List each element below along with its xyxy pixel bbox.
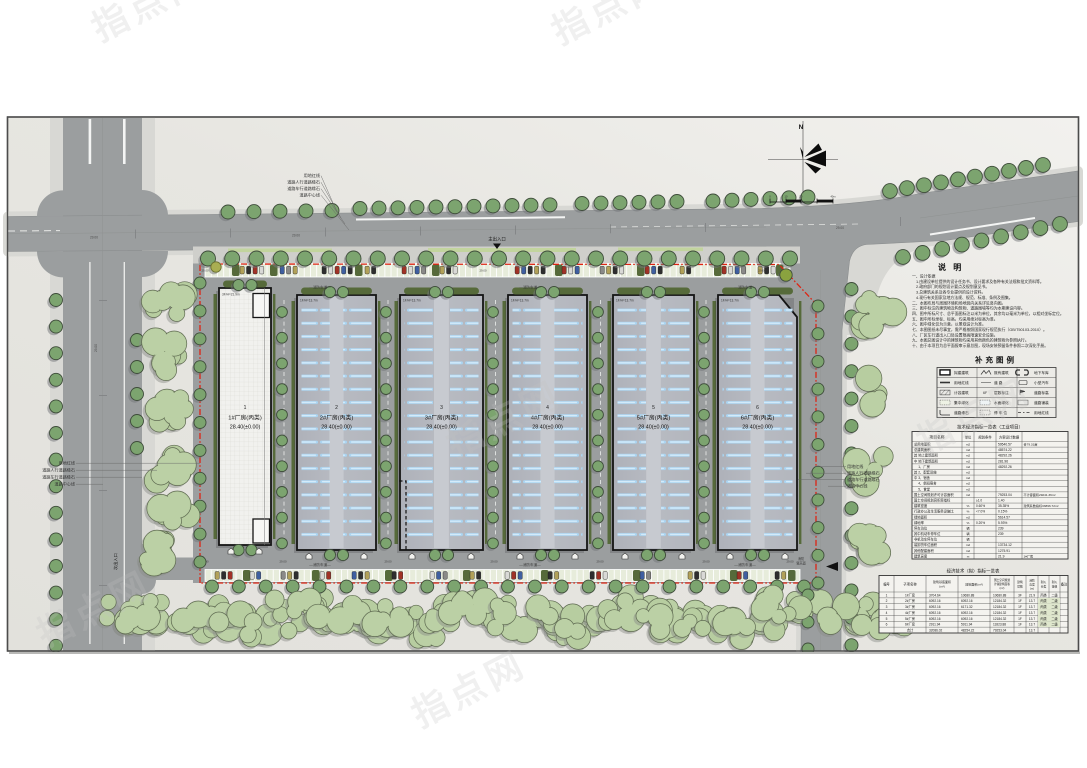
svg-text:中 3、宿舍: 中 3、宿舍	[914, 475, 931, 480]
svg-text:1F: 1F	[1018, 599, 1022, 603]
svg-text:29.00: 29.00	[202, 269, 209, 273]
svg-text:既有建筑: 既有建筑	[994, 370, 1009, 375]
svg-text:国土空间规划许可计容面积: 国土空间规划许可计容面积	[914, 492, 954, 497]
svg-text:48254.22: 48254.22	[961, 628, 975, 632]
svg-text:绿地面积: 绿地面积	[914, 514, 928, 519]
svg-text:不计容面积29241.36m²: 不计容面积29241.36m²	[1024, 492, 1056, 497]
svg-text:1: 1	[244, 405, 247, 411]
svg-text:七、本图图纸未尽事宜，需严格按照国家现行规范执行（GB/T5: 七、本图图纸未尽事宜，需严格按照国家现行规范执行（GB/T50103-2010）…	[912, 327, 1047, 332]
svg-text:(m²): (m²)	[1000, 586, 1005, 590]
svg-text:说 明: 说 明	[938, 262, 964, 272]
svg-text:次出入口: 次出入口	[112, 553, 119, 570]
svg-text:10680.88: 10680.88	[993, 593, 1007, 597]
svg-text:丙类: 丙类	[1040, 598, 1047, 603]
svg-text:12184.32: 12184.32	[993, 599, 1007, 603]
svg-text:6#厂房(丙类): 6#厂房(丙类)	[741, 414, 775, 422]
svg-text:6092.16: 6092.16	[961, 611, 973, 615]
svg-text:29.00: 29.00	[280, 560, 287, 564]
svg-text:非机动车停车位: 非机动车停车位	[914, 537, 938, 542]
svg-text:29.00: 29.00	[480, 269, 487, 273]
svg-text:建筑系数指标33896.72m²: 建筑系数指标33896.72m²	[1024, 503, 1059, 508]
svg-text:4: 4	[886, 611, 888, 615]
svg-text:21.9: 21.9	[998, 554, 1005, 558]
svg-text:3.总建筑关系及各专业提供的设计资料。: 3.总建筑关系及各专业提供的设计资料。	[916, 290, 985, 295]
svg-text:6092.16: 6092.16	[929, 605, 941, 609]
svg-text:N: N	[799, 124, 804, 131]
svg-text:道路车行道路缘石: 道路车行道路缘石	[847, 476, 880, 482]
svg-text:合79.31亩: 合79.31亩	[1024, 442, 1038, 447]
svg-text:三、图中标注的建筑物及构筑物、道路围墙等均为本期建设内容。: 三、图中标注的建筑物及构筑物、道路围墙等均为本期建设内容。	[912, 306, 1025, 311]
svg-text:拟建建筑: 拟建建筑	[954, 370, 969, 375]
svg-text:1.40: 1.40	[998, 498, 1005, 502]
svg-text:1#厂房: 1#厂房	[905, 592, 915, 597]
svg-text:八、厂区车行道出入口处设置限高限速安全设施。: 八、厂区车行道出入口处设置限高限速安全设施。	[912, 332, 998, 337]
svg-text:28.40(±0.00): 28.40(±0.00)	[532, 425, 563, 431]
svg-text:十、由于本项目为总平面报审示意总图，现场安装预留条件参照二次: 十、由于本项目为总平面报审示意总图，现场安装预留条件参照二次深化手册。	[912, 343, 1048, 348]
svg-text:六、图中绿化仅为示意，以景观设计为准。: 六、图中绿化仅为示意，以景观设计为准。	[912, 322, 986, 327]
svg-text:48292.26: 48292.26	[998, 465, 1012, 469]
svg-text:子项名称: 子项名称	[903, 582, 917, 587]
svg-text:耐火: 耐火	[1041, 580, 1047, 584]
svg-text:丙类: 丙类	[1040, 622, 1047, 627]
svg-text:13.7: 13.7	[1029, 611, 1035, 615]
svg-text:—消防车道—: —消防车道—	[734, 562, 756, 567]
svg-text:1: 1	[886, 593, 888, 597]
svg-text:239: 239	[998, 526, 1004, 530]
svg-text:丙类: 丙类	[1040, 610, 1047, 615]
svg-text:九、本图总图设计中的建筑物均采用其他颜色的建筑物为参照执行。: 九、本图总图设计中的建筑物均采用其他颜色的建筑物为参照执行。	[912, 338, 1029, 343]
svg-text:12184.32: 12184.32	[993, 617, 1007, 621]
svg-text:道路车行道路缘石: 道路车行道路缘石	[287, 185, 320, 191]
svg-text:32086.02: 32086.02	[929, 628, 943, 632]
svg-text:登高面: 登高面	[796, 561, 806, 566]
svg-text:2#厂房: 2#厂房	[905, 598, 915, 603]
svg-text:二级: 二级	[1051, 598, 1058, 603]
svg-text:—消防车道—: —消防车道—	[734, 285, 756, 290]
svg-text:m2: m2	[966, 476, 971, 480]
svg-text:5: 5	[652, 405, 655, 411]
svg-text:21.9: 21.9	[1029, 593, 1035, 597]
svg-text:3704.64: 3704.64	[929, 593, 941, 597]
svg-text:—消防车道—: —消防车道—	[309, 285, 331, 290]
svg-text:13.7: 13.7	[1029, 605, 1035, 609]
svg-text:二级: 二级	[1051, 610, 1058, 615]
svg-text:0.20%: 0.20%	[976, 521, 985, 525]
svg-text:国土空间规划: 国土空间规划	[994, 578, 1010, 582]
svg-text:地下车库: 地下车库	[1034, 370, 1049, 375]
svg-text:计容建筑: 计容建筑	[954, 390, 969, 395]
svg-text:m2: m2	[966, 543, 971, 547]
svg-text:1#厂房(丙类): 1#厂房(丙类)	[228, 414, 262, 422]
svg-text:3F: 3F	[1018, 593, 1022, 597]
svg-text:1F/H=13.7m: 1F/H=13.7m	[300, 299, 318, 303]
svg-text:1F: 1F	[1018, 623, 1022, 627]
svg-text:48292.26: 48292.26	[998, 454, 1012, 458]
svg-text:48574.22: 48574.22	[998, 448, 1012, 452]
svg-text:1F/H=13.7m: 1F/H=13.7m	[721, 299, 739, 303]
svg-text:13.7: 13.7	[1029, 599, 1035, 603]
svg-text:停车泊位: 停车泊位	[914, 525, 928, 530]
svg-text:28.40(±0.00): 28.40(±0.00)	[230, 425, 261, 431]
svg-text:补充图例: 补充图例	[974, 355, 1017, 365]
svg-text:3: 3	[440, 405, 443, 411]
svg-text:四、图中所标尺寸、总平面图标注以米为单位，其余均以毫米为单位: 四、图中所标尺寸、总平面图标注以米为单位，其余均以毫米为单位，以相对坐标定位。	[912, 311, 1064, 316]
svg-text:2: 2	[886, 599, 888, 603]
svg-text:m2: m2	[966, 487, 971, 491]
svg-text:丙类: 丙类	[1040, 616, 1047, 621]
svg-text:(m²): (m²)	[939, 585, 945, 589]
svg-text:13.7: 13.7	[1029, 617, 1035, 621]
svg-text:12184.32: 12184.32	[993, 611, 1007, 615]
svg-text:5911.94: 5911.94	[961, 623, 973, 627]
svg-text:3#厂房(丙类): 3#厂房(丙类)	[425, 414, 459, 422]
svg-text:1#厂房: 1#厂房	[1024, 553, 1034, 558]
svg-text:5.93%: 5.93%	[998, 521, 1007, 525]
svg-text:6092.16: 6092.16	[929, 599, 941, 603]
svg-text:29.00: 29.00	[385, 560, 392, 564]
svg-text:丙类: 丙类	[1040, 592, 1047, 597]
svg-text:11823.88: 11823.88	[993, 623, 1006, 627]
svg-text:等级: 等级	[1052, 585, 1058, 589]
svg-text:6092.16: 6092.16	[961, 599, 973, 603]
svg-text:用地红线: 用地红线	[59, 460, 75, 466]
svg-text:0.15%: 0.15%	[998, 510, 1007, 514]
svg-text:二级: 二级	[1051, 592, 1058, 597]
svg-text:1275.91: 1275.91	[998, 549, 1010, 553]
svg-text:道路中心线: 道路中心线	[55, 481, 75, 487]
svg-text:29.00: 29.00	[597, 560, 604, 564]
svg-text:其他配建面积: 其他配建面积	[914, 548, 934, 553]
svg-text:m2: m2	[966, 465, 971, 469]
svg-text:二级: 二级	[1051, 604, 1058, 609]
svg-text:239: 239	[998, 532, 1004, 536]
svg-text:%: %	[967, 504, 970, 508]
svg-text:道路中心线: 道路中心线	[300, 192, 320, 198]
svg-text:13.7: 13.7	[1029, 623, 1035, 627]
svg-text:—消防车道—: —消防车道—	[519, 562, 541, 567]
svg-text:29.00: 29.00	[292, 234, 300, 238]
svg-text:五、图中所标坐标、标高，均采用绝对标高为准。: 五、图中所标坐标、标高，均采用绝对标高为准。	[912, 316, 998, 321]
svg-text:0.60%: 0.60%	[976, 504, 985, 508]
svg-text:辆: 辆	[966, 531, 969, 536]
svg-text:用地红线: 用地红线	[954, 380, 969, 385]
svg-text:5、食堂: 5、食堂	[914, 486, 931, 491]
svg-text:2.政府部门的规划设计要点及规划意见书。: 2.政府部门的规划设计要点及规划意见书。	[916, 284, 989, 289]
svg-text:经济技术（拟）指标一览表: 经济技术（拟）指标一览表	[947, 568, 1000, 575]
svg-text:29.00: 29.00	[759, 269, 766, 273]
svg-text:28.40(±0.00): 28.40(±0.00)	[742, 425, 773, 431]
svg-text:6092.16: 6092.16	[961, 617, 973, 621]
svg-text:79253.04: 79253.04	[993, 628, 1007, 632]
svg-text:1F/H=13.7m: 1F/H=13.7m	[616, 299, 634, 303]
svg-text:计容建筑面积: 计容建筑面积	[994, 582, 1010, 586]
svg-text:29.00: 29.00	[491, 560, 498, 564]
svg-text:编号: 编号	[883, 582, 889, 587]
svg-text:二、本图布局与周围环境和场地竖向关系详见竖向图。: 二、本图布局与周围环境和场地竖向关系详见竖向图。	[912, 300, 1005, 305]
svg-text:40m: 40m	[830, 195, 835, 199]
svg-text:分类: 分类	[1041, 585, 1047, 589]
svg-text:13734.12: 13734.12	[998, 543, 1012, 547]
svg-text:—消防车道—: —消防车道—	[309, 562, 331, 567]
svg-text:1、厂房: 1、厂房	[914, 464, 931, 469]
svg-text:一、设计依据: 一、设计依据	[912, 274, 935, 279]
svg-text:辆: 辆	[966, 525, 969, 530]
svg-text:1F/H=13.7m: 1F/H=13.7m	[403, 299, 421, 303]
svg-text:m2: m2	[966, 482, 971, 486]
svg-text:<7.0%: <7.0%	[976, 510, 985, 514]
svg-text:79253.04: 79253.04	[998, 493, 1012, 497]
svg-text:29.00: 29.00	[703, 560, 710, 564]
svg-text:3#厂房: 3#厂房	[905, 604, 915, 609]
svg-text:建筑面积(m²): 建筑面积(m²)	[965, 582, 983, 587]
svg-text:m2: m2	[966, 549, 971, 553]
svg-text:28.40(±0.00): 28.40(±0.00)	[638, 425, 669, 431]
svg-text:道路人行道路缘石: 道路人行道路缘石	[287, 179, 320, 185]
svg-text:m2: m2	[966, 443, 971, 447]
svg-text:13.7: 13.7	[1029, 628, 1035, 632]
svg-text:5#厂房: 5#厂房	[905, 616, 915, 621]
svg-text:m2: m2	[966, 448, 971, 452]
svg-text:m2: m2	[966, 515, 971, 519]
svg-text:4.现行有关国家及地方法规、规范、标准、条例及图集。: 4.现行有关国家及地方法规、规范、标准、条例及图集。	[916, 295, 1013, 300]
svg-text:6092.16: 6092.16	[929, 617, 941, 621]
svg-text:6: 6	[756, 405, 759, 411]
svg-text:二级: 二级	[1051, 622, 1058, 627]
svg-text:建筑高度: 建筑高度	[914, 553, 928, 558]
svg-text:29.00: 29.00	[90, 236, 98, 240]
svg-text:281.96: 281.96	[998, 459, 1008, 463]
svg-text:消防: 消防	[798, 556, 805, 561]
svg-text:2#厂房(丙类): 2#厂房(丙类)	[320, 414, 354, 422]
svg-text:28.40(±0.00): 28.40(±0.00)	[321, 425, 352, 431]
svg-text:29.00: 29.00	[94, 344, 98, 352]
svg-text:3: 3	[886, 605, 888, 609]
svg-text:≥1.0: ≥1.0	[976, 498, 982, 502]
svg-text:方案设计数据: 方案设计数据	[999, 435, 1020, 440]
svg-text:—消防车道—: —消防车道—	[519, 285, 541, 290]
svg-text:用地红线: 用地红线	[304, 172, 320, 178]
svg-text:%: %	[967, 521, 970, 525]
svg-text:国土空间规划容积率指标: 国土空间规划容积率指标	[914, 497, 951, 502]
svg-text:绿地率: 绿地率	[914, 520, 925, 525]
svg-text:29.00: 29.00	[787, 560, 794, 564]
svg-text:m: m	[967, 554, 970, 558]
svg-text:丙类: 丙类	[1040, 604, 1047, 609]
svg-text:二级: 二级	[1051, 616, 1058, 621]
svg-text:5614.57: 5614.57	[998, 515, 1010, 519]
svg-text:3F/H=21.9m: 3F/H=21.9m	[222, 293, 240, 297]
svg-text:10680.88: 10680.88	[961, 593, 975, 597]
svg-text:5: 5	[886, 617, 888, 621]
svg-text:2: 2	[335, 405, 338, 411]
svg-text:m2: m2	[966, 454, 971, 458]
svg-text:2911.94: 2911.94	[929, 623, 941, 627]
svg-text:1F: 1F	[1018, 611, 1022, 615]
svg-text:m2: m2	[966, 459, 971, 463]
svg-text:1.由建设单位提供的设计任务书、设计要求及各种有关法规和批文: 1.由建设单位提供的设计任务书、设计要求及各种有关法规和批文资料等。	[916, 279, 1044, 284]
svg-text:其 2、配套设施: 其 2、配套设施	[914, 470, 937, 475]
svg-text:59540.57: 59540.57	[998, 443, 1012, 447]
svg-text:1F: 1F	[1018, 605, 1022, 609]
svg-text:道路中心线: 道路中心线	[847, 483, 867, 489]
svg-text:6171.32: 6171.32	[961, 605, 973, 609]
svg-text:4、倒班宿舍: 4、倒班宿舍	[914, 481, 937, 486]
svg-text:辆: 辆	[966, 537, 969, 542]
svg-text:小型汽车: 小型汽车	[1034, 380, 1049, 385]
svg-text:用地红线: 用地红线	[847, 463, 863, 469]
svg-text:道路人行道路缘石: 道路人行道路缘石	[42, 467, 75, 473]
svg-text:m2: m2	[966, 493, 971, 497]
svg-text:6#厂房: 6#厂房	[905, 622, 915, 627]
svg-text:5#厂房(丙类): 5#厂房(丙类)	[637, 414, 671, 422]
svg-text:35.35%: 35.35%	[998, 504, 1009, 508]
svg-text:道路车行道路缘石: 道路车行道路缘石	[42, 474, 75, 480]
svg-text:道路标高: 道路标高	[1034, 390, 1049, 395]
svg-text:%: %	[967, 510, 970, 514]
svg-text:备注: 备注	[1061, 582, 1068, 587]
svg-text:6: 6	[886, 623, 888, 627]
svg-text:4#厂房: 4#厂房	[905, 610, 915, 615]
svg-text:主出入口: 主出入口	[488, 236, 506, 243]
svg-text:29.00: 29.00	[836, 226, 844, 230]
svg-text:合计: 合计	[907, 627, 914, 632]
svg-text:6092.16: 6092.16	[929, 611, 941, 615]
svg-text:其中机动车停车位: 其中机动车停车位	[914, 531, 941, 536]
svg-text:(m): (m)	[1030, 587, 1034, 591]
svg-text:12184.32: 12184.32	[993, 605, 1007, 609]
svg-text:m2: m2	[966, 471, 971, 475]
svg-text:1F: 1F	[1018, 617, 1022, 621]
svg-text:用地红线: 用地红线	[1034, 410, 1049, 415]
svg-text:建筑: 建筑	[1017, 580, 1023, 584]
svg-text:建筑密度: 建筑密度	[914, 503, 928, 508]
svg-text:装卸货车位面积: 装卸货车位面积	[914, 542, 938, 547]
svg-text:道路人行道路缘石: 道路人行道路缘石	[847, 470, 880, 476]
svg-text:建筑基底面积: 建筑基底面积	[933, 579, 951, 584]
svg-text:行政办公及生活服务设施比: 行政办公及生活服务设施比	[914, 509, 954, 514]
svg-text:耐火: 耐火	[1052, 580, 1058, 584]
svg-text:1F/H=13.7m: 1F/H=13.7m	[511, 299, 529, 303]
svg-text:层数: 层数	[1017, 585, 1023, 589]
